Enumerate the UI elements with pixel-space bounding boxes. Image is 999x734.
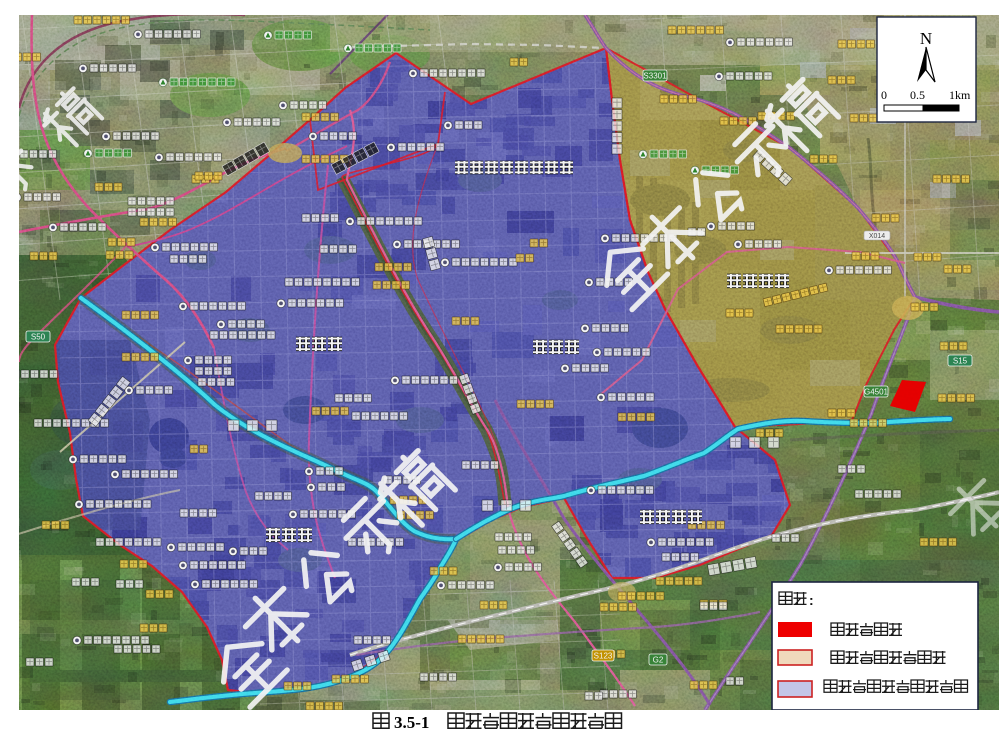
svg-text:3.5-1: 3.5-1 — [394, 713, 429, 732]
svg-text:0: 0 — [881, 88, 887, 102]
svg-text:0.5: 0.5 — [910, 88, 925, 102]
svg-text:1km: 1km — [949, 88, 971, 102]
svg-text:N: N — [920, 29, 932, 48]
svg-text::: : — [809, 592, 814, 608]
